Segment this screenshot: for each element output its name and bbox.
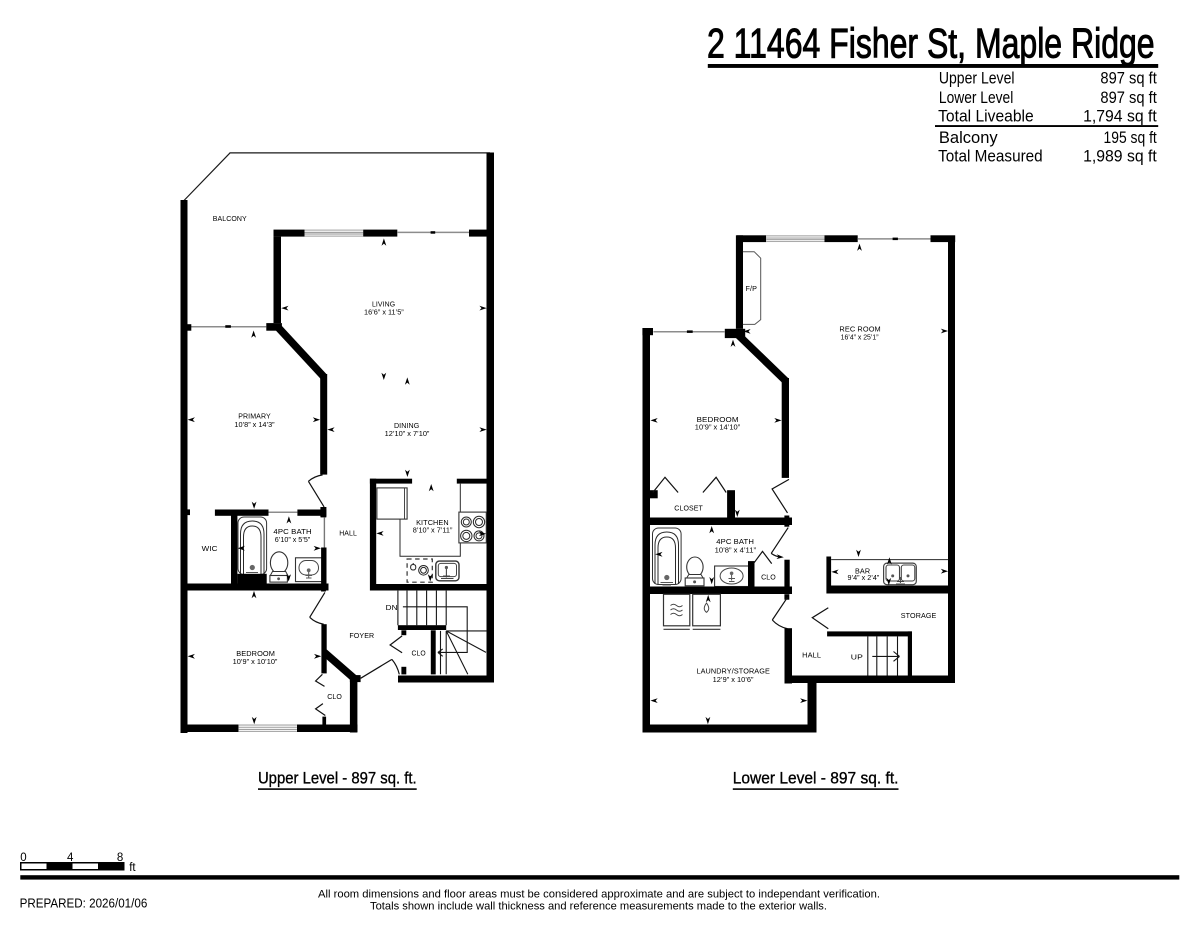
- svg-text:6’10” x 5’5”: 6’10” x 5’5”: [275, 535, 311, 544]
- svg-text:10’8” x 4’11”: 10’8” x 4’11”: [715, 545, 757, 554]
- svg-text:ft: ft: [129, 862, 136, 874]
- svg-text:195 sq ft: 195 sq ft: [1104, 129, 1158, 147]
- svg-text:12’10” x 7’10”: 12’10” x 7’10”: [385, 429, 430, 438]
- svg-text:10’9” x 14’10”: 10’9” x 14’10”: [695, 423, 741, 432]
- svg-text:CLO: CLO: [412, 648, 426, 657]
- svg-text:9’4” x 2’4”: 9’4” x 2’4”: [848, 573, 880, 582]
- svg-text:CLO: CLO: [761, 572, 776, 581]
- svg-text:0: 0: [20, 852, 26, 864]
- svg-text:8’10” x 7’11”: 8’10” x 7’11”: [413, 526, 453, 535]
- svg-text:BALCONY: BALCONY: [213, 214, 247, 223]
- svg-text:HALL: HALL: [802, 650, 821, 659]
- svg-text:FOYER: FOYER: [349, 631, 374, 640]
- svg-text:All room dimensions and floor: All room dimensions and floor areas must…: [318, 888, 880, 900]
- svg-text:DN: DN: [386, 603, 398, 612]
- svg-text:897 sq ft: 897 sq ft: [1100, 70, 1157, 88]
- svg-text:897 sq ft: 897 sq ft: [1100, 89, 1157, 107]
- svg-text:Upper Level: Upper Level: [939, 70, 1015, 88]
- svg-text:STORAGE: STORAGE: [901, 611, 937, 620]
- svg-text:UP: UP: [851, 653, 863, 662]
- svg-text:PREPARED: 2026/01/06: PREPARED: 2026/01/06: [20, 896, 148, 911]
- svg-text:F/P: F/P: [746, 284, 758, 293]
- svg-text:4: 4: [67, 852, 74, 864]
- svg-text:HALL: HALL: [339, 528, 357, 537]
- svg-text:1,989 sq ft: 1,989 sq ft: [1083, 148, 1157, 166]
- svg-text:1,794 sq ft: 1,794 sq ft: [1083, 108, 1157, 126]
- svg-text:8: 8: [117, 852, 123, 864]
- svg-text:Lower Level - 897 sq. ft.: Lower Level - 897 sq. ft.: [733, 768, 899, 787]
- svg-text:10’8” x 14’3”: 10’8” x 14’3”: [234, 420, 275, 429]
- svg-text:WIC: WIC: [202, 544, 218, 553]
- svg-text:Total Measured: Total Measured: [938, 148, 1043, 166]
- svg-text:CLOSET: CLOSET: [674, 504, 703, 513]
- svg-text:Balcony: Balcony: [939, 129, 999, 147]
- svg-text:Total Liveable: Total Liveable: [938, 108, 1034, 126]
- svg-text:CLO: CLO: [327, 692, 342, 701]
- svg-text:16’6” x 11’5”: 16’6” x 11’5”: [364, 308, 404, 317]
- svg-text:10’9” x 10’10”: 10’9” x 10’10”: [233, 657, 278, 666]
- svg-text:Lower Level: Lower Level: [939, 89, 1013, 107]
- svg-text:Totals shown include wall thic: Totals shown include wall thickness and …: [370, 900, 827, 912]
- svg-text:2 11464 Fisher St, Maple Ridge: 2 11464 Fisher St, Maple Ridge: [707, 19, 1155, 66]
- svg-text:16’4” x 25’1”: 16’4” x 25’1”: [841, 333, 879, 342]
- svg-text:Upper Level - 897 sq. ft.: Upper Level - 897 sq. ft.: [258, 768, 417, 787]
- svg-text:12’9” x 10’6”: 12’9” x 10’6”: [713, 675, 754, 684]
